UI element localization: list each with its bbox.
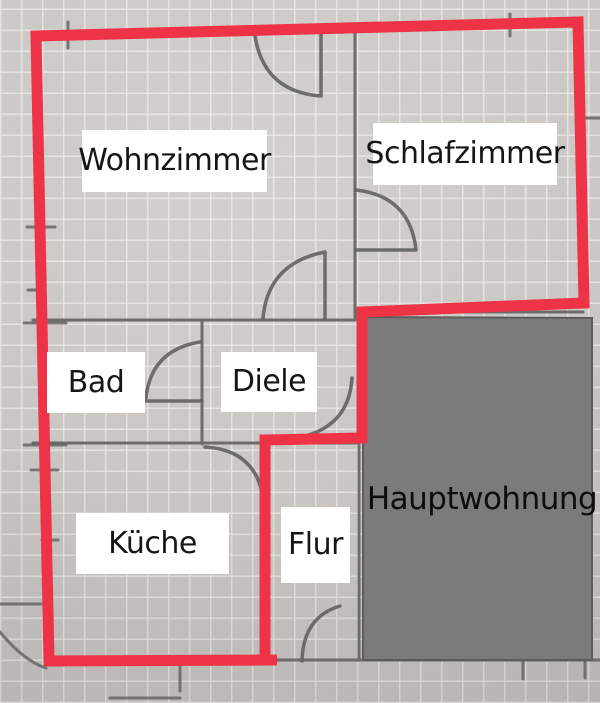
room-label-flur: Flur [281,507,350,583]
floorplan-photo: Wohnzimmer Schlafzimmer Bad Diele Küche … [0,0,600,703]
room-label-kueche: Küche [76,513,229,574]
room-label-diele: Diele [221,352,317,412]
room-label-schlafzimmer: Schlafzimmer [373,123,557,185]
room-label-hauptwohnung: Hauptwohnung [378,470,586,528]
room-label-bad: Bad [47,352,145,413]
room-label-wohnzimmer: Wohnzimmer [82,130,267,192]
